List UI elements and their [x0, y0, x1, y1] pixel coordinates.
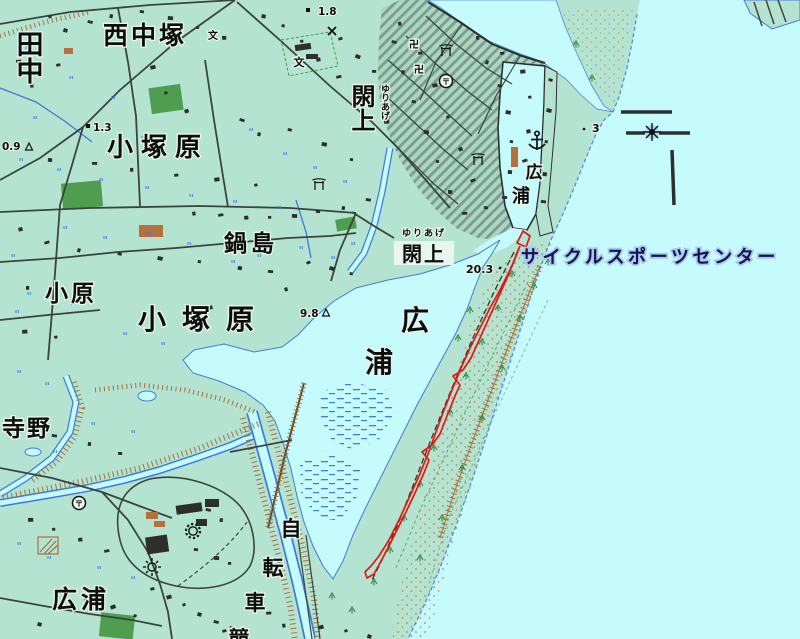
benchmark-icon [86, 124, 90, 128]
elevation-1-3: 1.3 [93, 122, 112, 134]
label-jitensha-3: 車 [245, 591, 266, 615]
label-hiroura-southwest: 広浦 [52, 585, 110, 614]
post-office-icon: 〒 [440, 75, 453, 88]
label-nishi-nakatsuka: 西中塚 [103, 21, 187, 50]
label-cycle-sports-center: サイクルスポーツセンター [521, 246, 779, 268]
temple-mark: 卍 [409, 39, 419, 51]
label-yuriage-horizontal: 閖上 [402, 242, 446, 266]
elevation-0-9: 0.9 [2, 141, 21, 153]
post-office-icon: 〒 [73, 497, 86, 510]
elevation-9-8: 9.8 [300, 308, 319, 320]
label-yuriage-vertical-kana: ゆりあげ [379, 84, 390, 121]
label-kozukahara-south: 小塚原 [138, 303, 270, 336]
label-hiroura-harbor-2: 浦 [512, 185, 530, 207]
benchmark-icon [306, 8, 310, 12]
label-hiroura-harbor-1: 広 [526, 162, 543, 183]
svg-text:〒: 〒 [442, 78, 450, 87]
elevation-20-3: 20.3 [466, 263, 493, 276]
label-hiroura-lagoon-2: 浦 [365, 346, 393, 379]
elevation-3: 3 [592, 122, 600, 135]
label-jitensha-1: 自 [281, 517, 302, 541]
pond-1 [138, 391, 156, 401]
label-terano: 寺野 [2, 416, 52, 442]
school-mark: 文 [294, 55, 306, 69]
label-kozukahara-north: 小塚原 [107, 133, 209, 163]
map-stage[interactable]: 〒 〒 田中 西中塚 小塚原 [0, 0, 800, 639]
temple-mark: 卍 [414, 64, 424, 76]
topo-map-canvas[interactable]: 〒 〒 田中 西中塚 小塚原 [0, 0, 800, 639]
label-yuriage-vertical: 閖上 [347, 84, 375, 132]
label-jitensha-4: 競 [229, 627, 250, 639]
label-jitensha-2: 転 [263, 556, 284, 580]
elevation-1-8: 1.8 [318, 6, 337, 18]
pond-2 [25, 448, 41, 456]
label-nabeshima: 鍋島 [224, 230, 278, 257]
svg-text:〒: 〒 [75, 500, 83, 509]
label-tanaka: 田中 [12, 30, 43, 84]
spot-dot [583, 128, 586, 131]
label-yuriage-horizontal-kana: ゆりあげ [402, 227, 446, 239]
school-mark: 文 [208, 29, 219, 42]
label-hiroura-lagoon-1: 広 [401, 304, 429, 337]
label-obara: 小原 [45, 281, 97, 307]
spot-dot [499, 267, 502, 270]
